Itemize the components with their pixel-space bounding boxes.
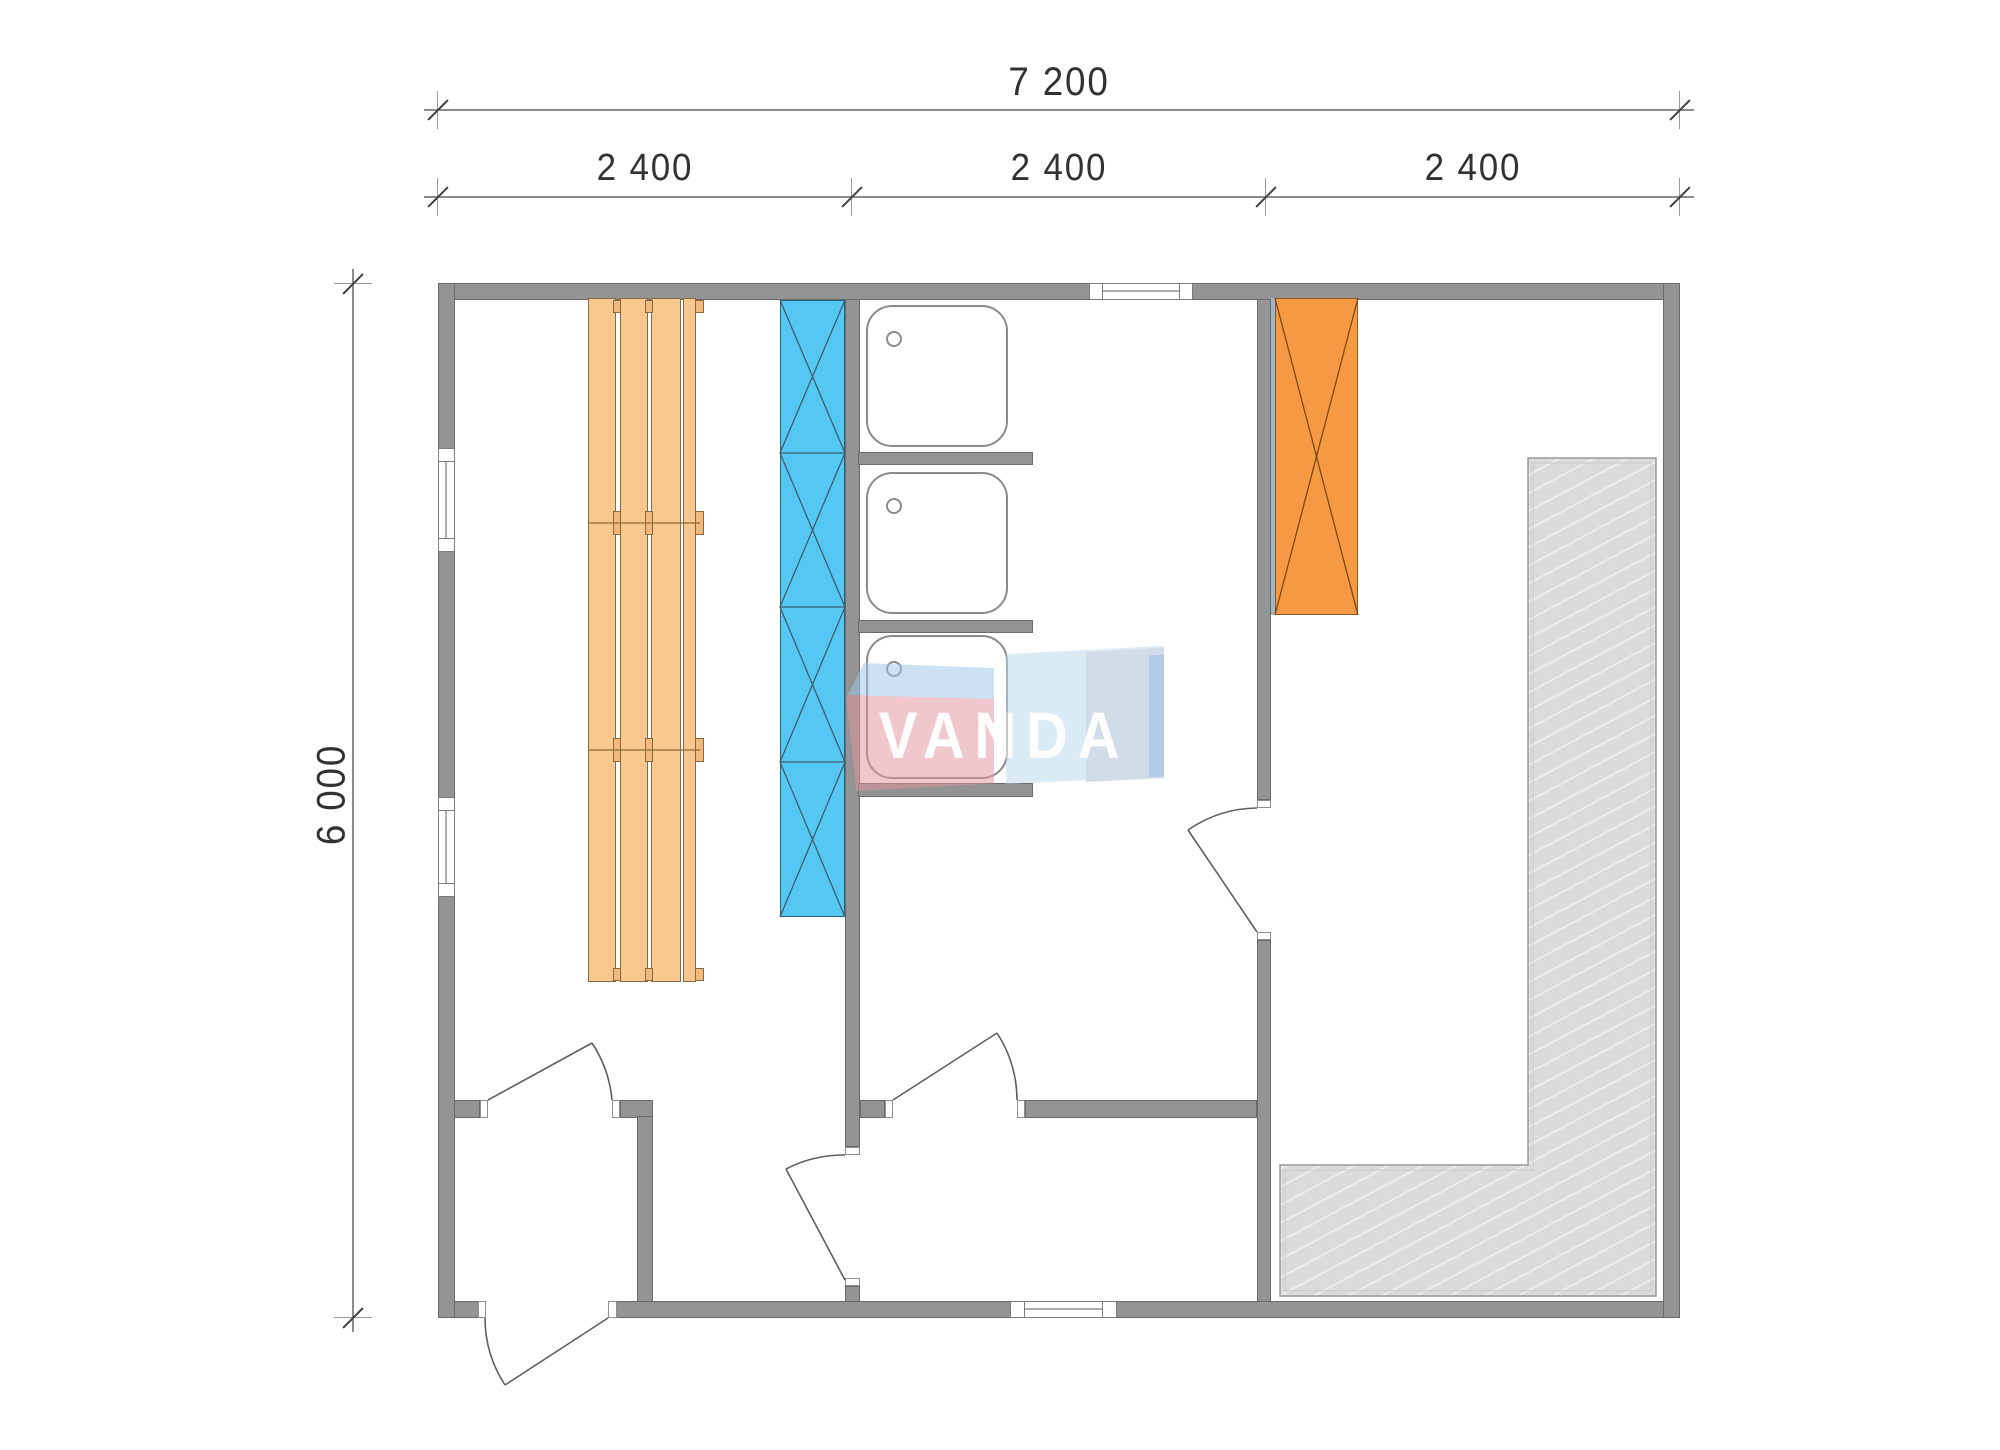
door-jamb — [480, 1100, 488, 1118]
dimension-label-total-width: 7 200 — [985, 60, 1132, 105]
wall-vestibule-top-left — [454, 1100, 480, 1118]
watermark-right-edge — [1149, 655, 1164, 778]
window-left-1 — [438, 448, 455, 552]
bench-support-tab — [695, 968, 704, 981]
window-frame-cap — [438, 797, 455, 811]
heater-column — [780, 300, 845, 917]
dimension-line-total-width — [424, 109, 1694, 111]
door-washroom-alcove — [786, 1155, 845, 1280]
shower-tray-2 — [866, 472, 1008, 614]
door-opening-exterior — [486, 1299, 608, 1320]
dimension-line-sections — [424, 196, 1694, 198]
shower-drain — [886, 331, 902, 347]
dimension-label-height: 6 000 — [310, 721, 355, 868]
window-frame-cap — [1102, 1301, 1117, 1318]
sauna-bench-plank — [651, 298, 681, 982]
window-frame-cap — [1089, 283, 1103, 300]
bench-support-tab — [695, 738, 704, 762]
wall-shower-stub-2 — [858, 620, 1033, 633]
vanda-watermark: VANDA — [843, 645, 1165, 797]
bench-support-tab — [645, 300, 653, 313]
wall-shower-stub-1 — [858, 452, 1033, 465]
wall-right-divider-upper — [1257, 299, 1271, 800]
wall-exterior-right — [1663, 283, 1680, 1318]
watermark-top-face — [846, 663, 994, 699]
window-top — [1089, 283, 1193, 300]
wall-washroom-left — [860, 1100, 885, 1118]
door-exterior — [485, 1318, 608, 1385]
bench-support-tab — [645, 738, 653, 762]
wall-washroom-right — [1025, 1100, 1257, 1118]
window-frame-cap — [438, 883, 455, 897]
bench-support-tab — [613, 300, 621, 313]
bench-support-tab — [613, 738, 621, 762]
watermark-text: VANDA — [862, 697, 1145, 773]
wall-vestibule-right — [637, 1116, 653, 1302]
sauna-bench-plank — [683, 298, 696, 982]
door-washroom-rightroom — [1188, 808, 1257, 932]
wall-right-divider-lower — [1257, 940, 1271, 1302]
bench-support-tab — [695, 300, 704, 313]
bench-support-tab — [645, 968, 653, 981]
dimension-label-section-2: 2 400 — [995, 147, 1124, 190]
wall-sauna-divider-stub — [845, 1286, 860, 1302]
floor-plan-canvas: 7 200 2 400 2 400 2 400 6 000 — [0, 0, 2000, 1450]
bench-support-tab — [613, 511, 621, 535]
cabinet-unit — [1275, 298, 1358, 615]
dimension-label-section-1: 2 400 — [581, 147, 710, 190]
door-jamb — [845, 1147, 860, 1155]
door-jamb — [1257, 932, 1271, 940]
door-jamb — [885, 1100, 893, 1118]
window-frame-cap — [1179, 283, 1193, 300]
door-shower-washroom — [893, 1033, 1017, 1100]
door-jamb — [1017, 1100, 1025, 1118]
window-left-2 — [438, 797, 455, 897]
window-bottom — [1010, 1301, 1117, 1318]
window-frame-cap — [438, 448, 455, 462]
bench-support-tab — [695, 511, 704, 535]
door-vestibule-sauna — [488, 1043, 612, 1100]
shower-drain — [886, 498, 902, 514]
door-jamb — [1257, 800, 1271, 808]
sauna-bench-plank — [588, 298, 616, 982]
door-jamb — [478, 1301, 486, 1318]
bench-support-tab — [645, 511, 653, 535]
door-jamb — [608, 1301, 617, 1318]
door-jamb — [845, 1278, 860, 1286]
sauna-bench-plank — [620, 298, 648, 982]
door-jamb — [612, 1100, 620, 1118]
bench-support-tab — [613, 968, 621, 981]
window-frame-cap — [1010, 1301, 1025, 1318]
shower-tray-1 — [866, 305, 1008, 447]
window-frame-cap — [438, 538, 455, 552]
dimension-label-section-3: 2 400 — [1409, 147, 1538, 190]
